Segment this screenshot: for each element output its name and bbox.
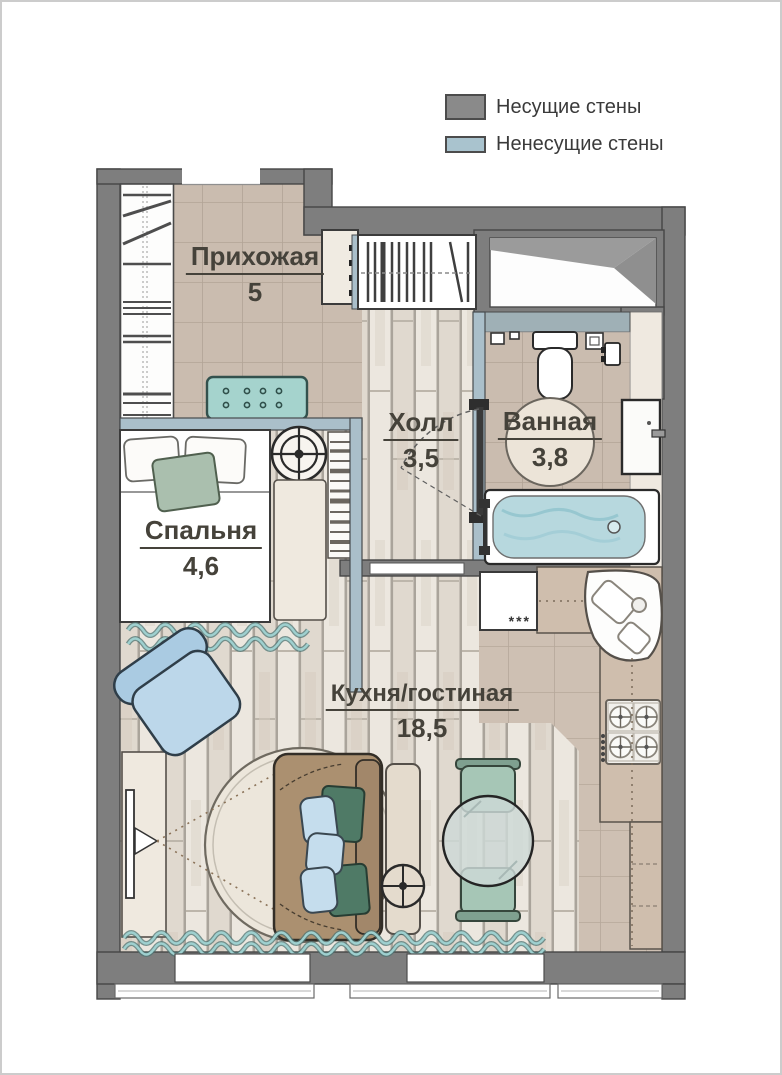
console-table [382,764,424,934]
bedroom-partition-right [350,418,362,692]
slatted-wardrobe [352,235,476,309]
toilet-brush [510,332,519,339]
room-area: 3,5 [383,444,458,474]
pillow-sage [152,452,221,512]
bathtub-faucet [479,499,490,508]
decor-symbol [382,865,424,907]
sliding-door[interactable] [370,563,464,574]
bedroom-partition-top [120,418,362,430]
room-area: 18,5 [326,714,519,744]
room-name: Прихожая [186,242,324,275]
room-label-bedroom: Спальня 4,6 [140,516,262,582]
bathtub [479,490,659,564]
non-load-bearing-swatch [445,136,486,153]
wall-box [586,333,603,349]
room-name: Ванная [498,407,602,440]
non-load-bearing-label: Ненесущие стены [496,133,664,156]
room-area: 4,6 [140,552,262,582]
fridge: *** [480,572,537,630]
freezer-stars: *** [509,613,531,629]
room-label-hall: Холл 3,5 [383,408,458,474]
legend: Несущие стены Ненесущие стены [445,94,664,156]
room-area: 3,8 [498,443,602,473]
hallway-bench [207,377,307,419]
ceiling-light-symbol [272,427,326,481]
bathroom-side-door[interactable] [622,400,665,474]
floor-plan-drawing: *** [2,2,782,1075]
window-opening [175,954,310,982]
ventilation-niche-large [490,238,656,307]
room-label-kitchen-living: Кухня/гостиная 18,5 [326,680,519,743]
load-bearing-swatch [445,94,486,120]
toilet [533,332,577,399]
pillow-blue [300,866,338,913]
bathroom-top-band [485,312,630,332]
exterior-mask [332,160,685,207]
room-name: Спальня [140,516,262,549]
wall-left [97,169,120,999]
window-opening [407,954,544,982]
legend-row-non-load-bearing: Ненесущие стены [445,133,664,156]
bedroom-desk [274,480,326,620]
kitchen-base-cabinet [630,822,662,949]
entrance-opening [182,164,260,185]
load-bearing-label: Несущие стены [496,96,641,119]
dining-table-glass [443,796,533,886]
floor-plan-page: *** [0,0,782,1075]
room-area: 5 [186,278,324,308]
toilet-paper-holder [491,333,504,344]
room-label-hallway: Прихожая 5 [186,242,324,308]
hallway-wardrobe [121,184,174,420]
ladder-shelf [328,432,353,558]
sofa [274,754,382,940]
room-label-bathroom: Ванная 3,8 [498,407,602,473]
tv [126,790,134,898]
tv-console [122,752,166,937]
sink-faucet [632,598,646,612]
wall-right [662,207,685,952]
room-name: Кухня/гостиная [326,680,519,711]
stove [601,700,660,764]
door-handle [652,430,665,437]
wall-corner-br [662,984,685,999]
room-name: Холл [383,408,458,441]
legend-row-load-bearing: Несущие стены [445,94,664,120]
bathtub-drain [608,521,620,533]
